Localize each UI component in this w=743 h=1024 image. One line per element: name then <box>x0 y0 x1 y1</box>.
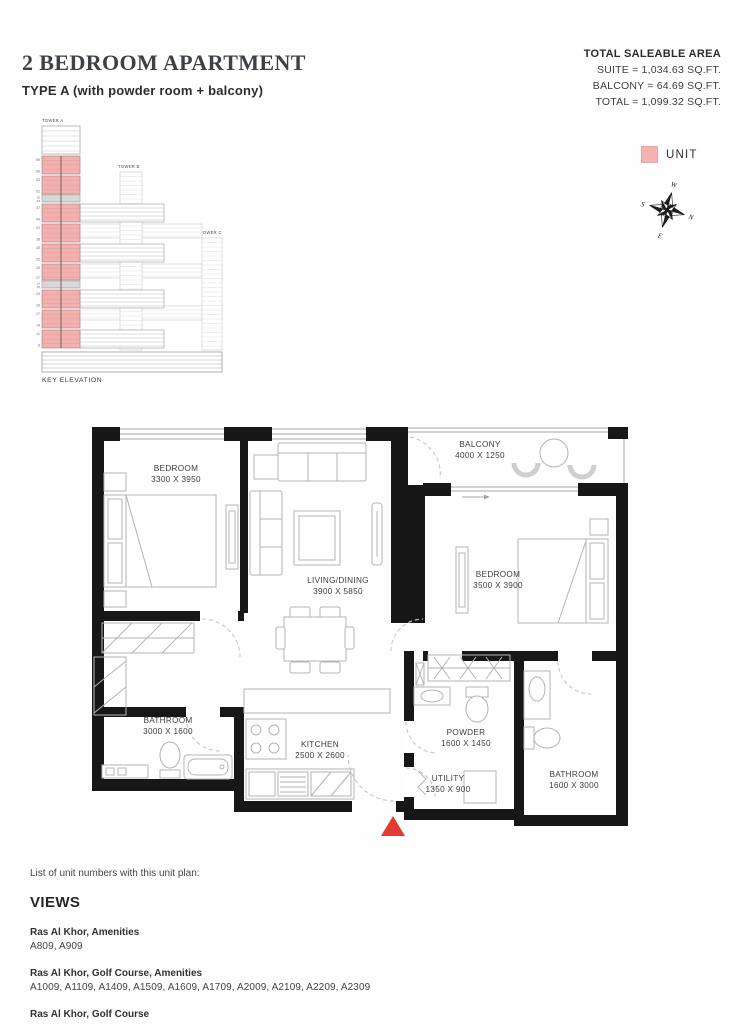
room-dims-powder: 1600 X 1450 <box>441 739 491 748</box>
room-dims-kitchen: 2500 X 2600 <box>295 751 345 760</box>
views-heading: VIEWS <box>30 894 730 911</box>
floor-number: 25 <box>37 285 41 289</box>
floor-plan: BEDROOM 3300 X 3950 LIVING/DINING 3900 X… <box>88 421 638 866</box>
tower-c-column <box>202 238 222 350</box>
header: 2 BEDROOM APARTMENT TYPE A (with powder … <box>22 50 306 98</box>
room-dims-living: 3900 X 5850 <box>313 587 363 596</box>
room-label-bedroom1: BEDROOM <box>154 464 198 473</box>
floor-number: 14 <box>36 324 40 328</box>
page-subtitle: TYPE A (with powder room + balcony) <box>22 83 306 98</box>
room-dims-bedroom2: 3500 X 3900 <box>473 581 523 590</box>
page-title: 2 BEDROOM APARTMENT <box>22 50 306 76</box>
room-label-utility: UTILITY <box>432 774 465 783</box>
view-group: Ras Al Khor, Amenities A809, A909 <box>30 927 730 952</box>
area-total: TOTAL = 1,099.32 SQ.FT. <box>584 96 721 108</box>
unit-legend: UNIT <box>641 146 698 163</box>
unit-list-intro: List of unit numbers with this unit plan… <box>30 868 730 879</box>
floor-number: 38 <box>36 238 40 242</box>
sliding-door-arrow-icon <box>484 495 490 500</box>
key-elevation-diagram: TOWER A TOWER B TOWER C <box>14 110 229 390</box>
floor-number: 47 <box>36 206 40 210</box>
entrance-marker-icon <box>381 816 405 836</box>
room-label-kitchen: KITCHEN <box>301 740 339 749</box>
floor-number: 56 <box>36 170 40 174</box>
area-summary: TOTAL SALEABLE AREA SUITE = 1,034.63 SQ.… <box>584 48 721 108</box>
floor-number: 20 <box>36 304 40 308</box>
floor-number: 8 <box>38 344 40 348</box>
tower-c-label: TOWER C <box>200 230 222 235</box>
compass-rose-icon: W N E S <box>630 168 704 250</box>
room-dims-bathroom2: 1600 X 3000 <box>549 781 599 790</box>
area-balcony: BALCONY = 64.69 SQ.FT. <box>584 80 721 92</box>
floor-number: 44 <box>36 218 40 222</box>
floor-number: 41 <box>36 226 40 230</box>
floor-number: 59 <box>36 158 40 162</box>
view-name: Ras Al Khor, Amenities <box>30 927 730 938</box>
room-label-bathroom2: BATHROOM <box>549 770 598 779</box>
tower-a-label: TOWER A <box>42 118 63 123</box>
view-units: A809, A909 <box>30 941 730 952</box>
room-dims-utility: 1350 X 900 <box>426 785 471 794</box>
unit-swatch-icon <box>641 146 658 163</box>
area-suite: SUITE = 1,034.63 SQ.FT. <box>584 64 721 76</box>
bathroom2-furniture <box>524 671 560 749</box>
unit-legend-label: UNIT <box>666 149 698 161</box>
bathroom1-furniture <box>102 742 232 779</box>
page-root: 2 BEDROOM APARTMENT TYPE A (with powder … <box>0 0 743 1024</box>
floor-number: 32 <box>36 258 40 262</box>
view-name: Ras Al Khor, Golf Course, Amenities <box>30 968 730 979</box>
floor-number: 35 <box>36 246 40 250</box>
floor-number: 51 <box>36 190 40 194</box>
compass-letter-south: S <box>640 200 646 209</box>
room-label-living: LIVING/DINING <box>307 576 369 585</box>
floor-numbers: 59 56 53 51 50 49 47 44 41 38 35 32 29 2… <box>36 158 40 348</box>
view-group: Ras Al Khor, Golf Course A2709, A2809, A… <box>30 1009 730 1024</box>
room-dims-bedroom1: 3300 X 3950 <box>151 475 201 484</box>
floor-number: 17 <box>36 312 40 316</box>
room-label-balcony: BALCONY <box>459 440 500 449</box>
area-summary-heading: TOTAL SALEABLE AREA <box>584 48 721 60</box>
view-units: A1009, A1109, A1409, A1509, A1609, A1709… <box>30 982 730 993</box>
room-dims-balcony: 4000 X 1250 <box>455 451 505 460</box>
room-label-bedroom2: BEDROOM <box>476 570 520 579</box>
floor-number: 23 <box>36 292 40 296</box>
room-dims-bathroom1: 3000 X 1600 <box>143 727 193 736</box>
compass-letter-east: E <box>656 231 664 240</box>
podium <box>42 352 222 372</box>
room-label-bathroom1: BATHROOM <box>143 716 192 725</box>
view-name: Ras Al Khor, Golf Course <box>30 1009 730 1020</box>
balcony-furniture <box>514 439 594 477</box>
unit-list: List of unit numbers with this unit plan… <box>30 868 730 1024</box>
powder-furniture <box>414 687 488 722</box>
closets <box>94 623 194 715</box>
compass-letter-west: W <box>670 180 679 190</box>
floor-number: 53 <box>36 178 40 182</box>
living-furniture <box>250 443 382 673</box>
floor-number: 27 <box>36 276 40 280</box>
view-group: Ras Al Khor, Golf Course, Amenities A100… <box>30 968 730 993</box>
floor-number: 49 <box>37 199 41 203</box>
compass-letter-north: N <box>687 213 695 222</box>
tower-b-label: TOWER B <box>118 164 140 169</box>
room-label-powder: POWDER <box>447 728 486 737</box>
tower-a-column <box>42 126 80 348</box>
floor-number: 29 <box>36 266 40 270</box>
floor-number: 11 <box>36 332 40 336</box>
bedroom1-furniture <box>104 473 238 607</box>
key-elevation-caption: KEY ELEVATION <box>42 377 102 384</box>
